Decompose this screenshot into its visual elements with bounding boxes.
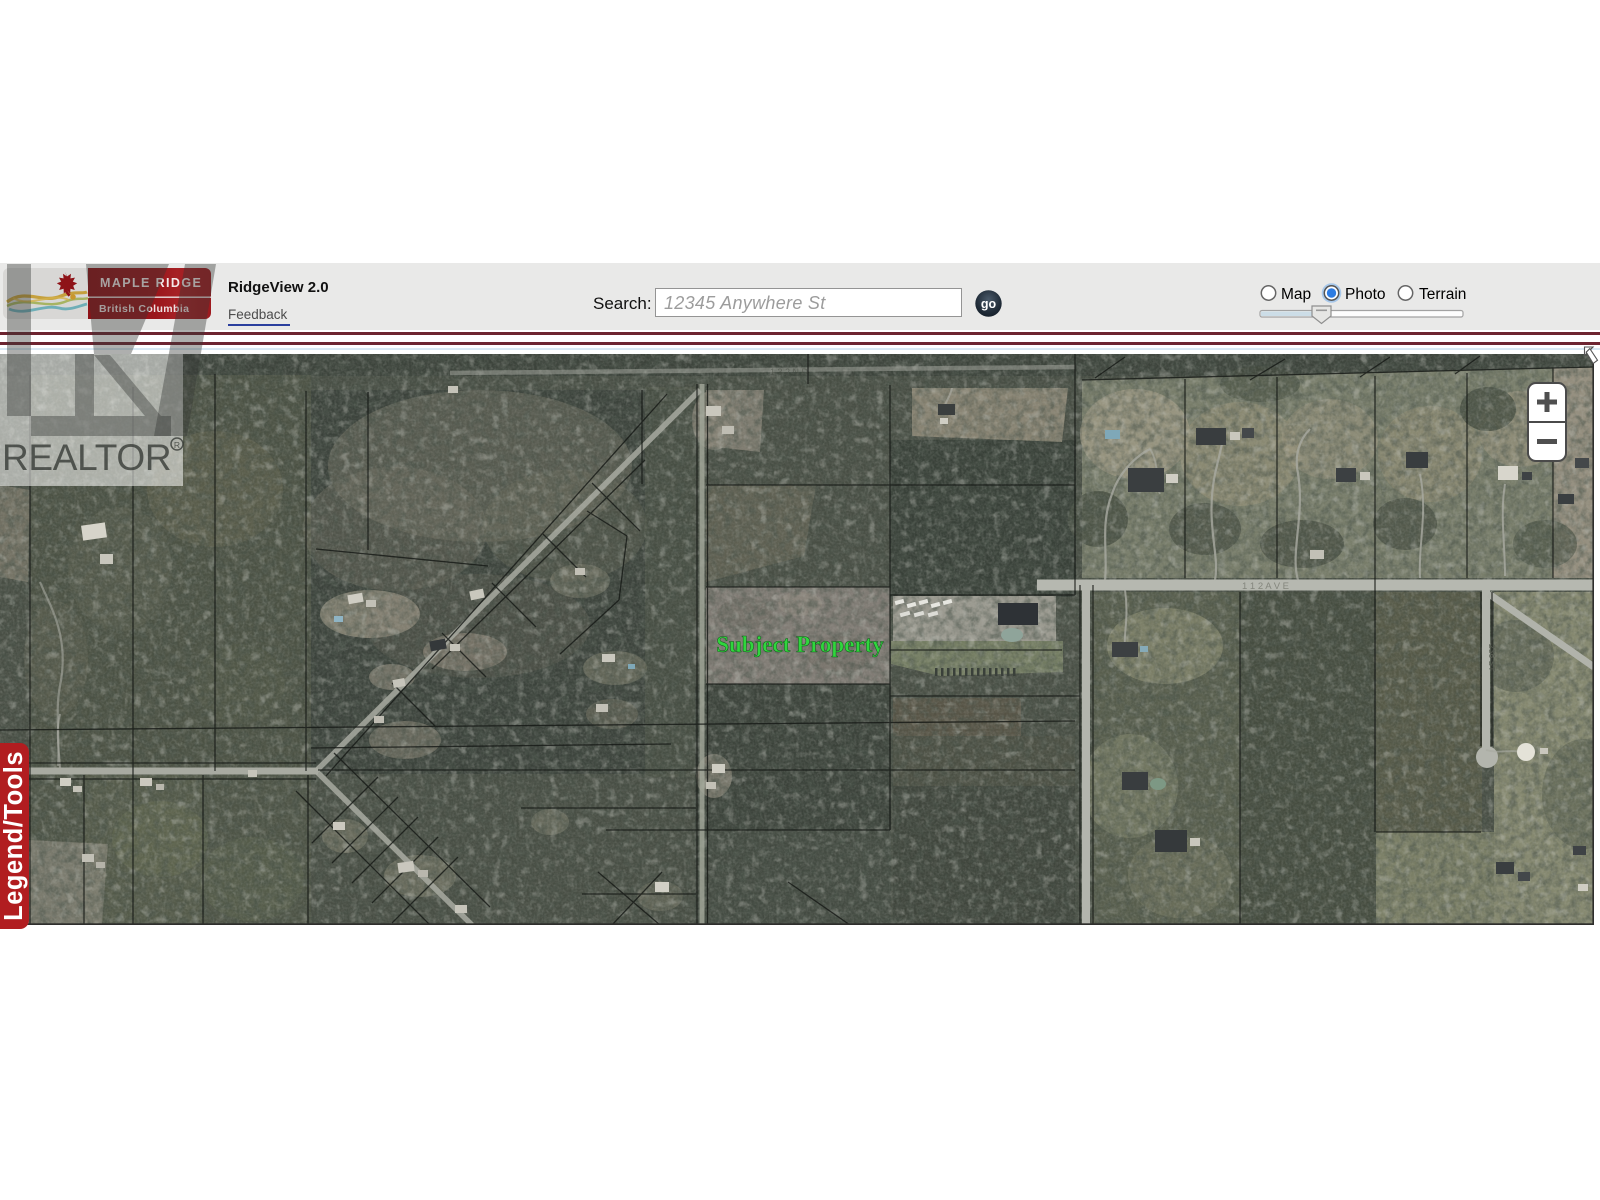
svg-text:R: R	[174, 440, 180, 450]
svg-text:go: go	[981, 297, 997, 311]
svg-text:236 ST: 236 ST	[1487, 644, 1497, 671]
svg-text:REALTOR: REALTOR	[2, 437, 171, 478]
svg-text:Subject Property: Subject Property	[716, 632, 884, 657]
svg-text:1 3 2 N D: 1 3 2 N D	[770, 367, 809, 377]
svg-text:1 1 2 A V E: 1 1 2 A V E	[1242, 581, 1289, 592]
